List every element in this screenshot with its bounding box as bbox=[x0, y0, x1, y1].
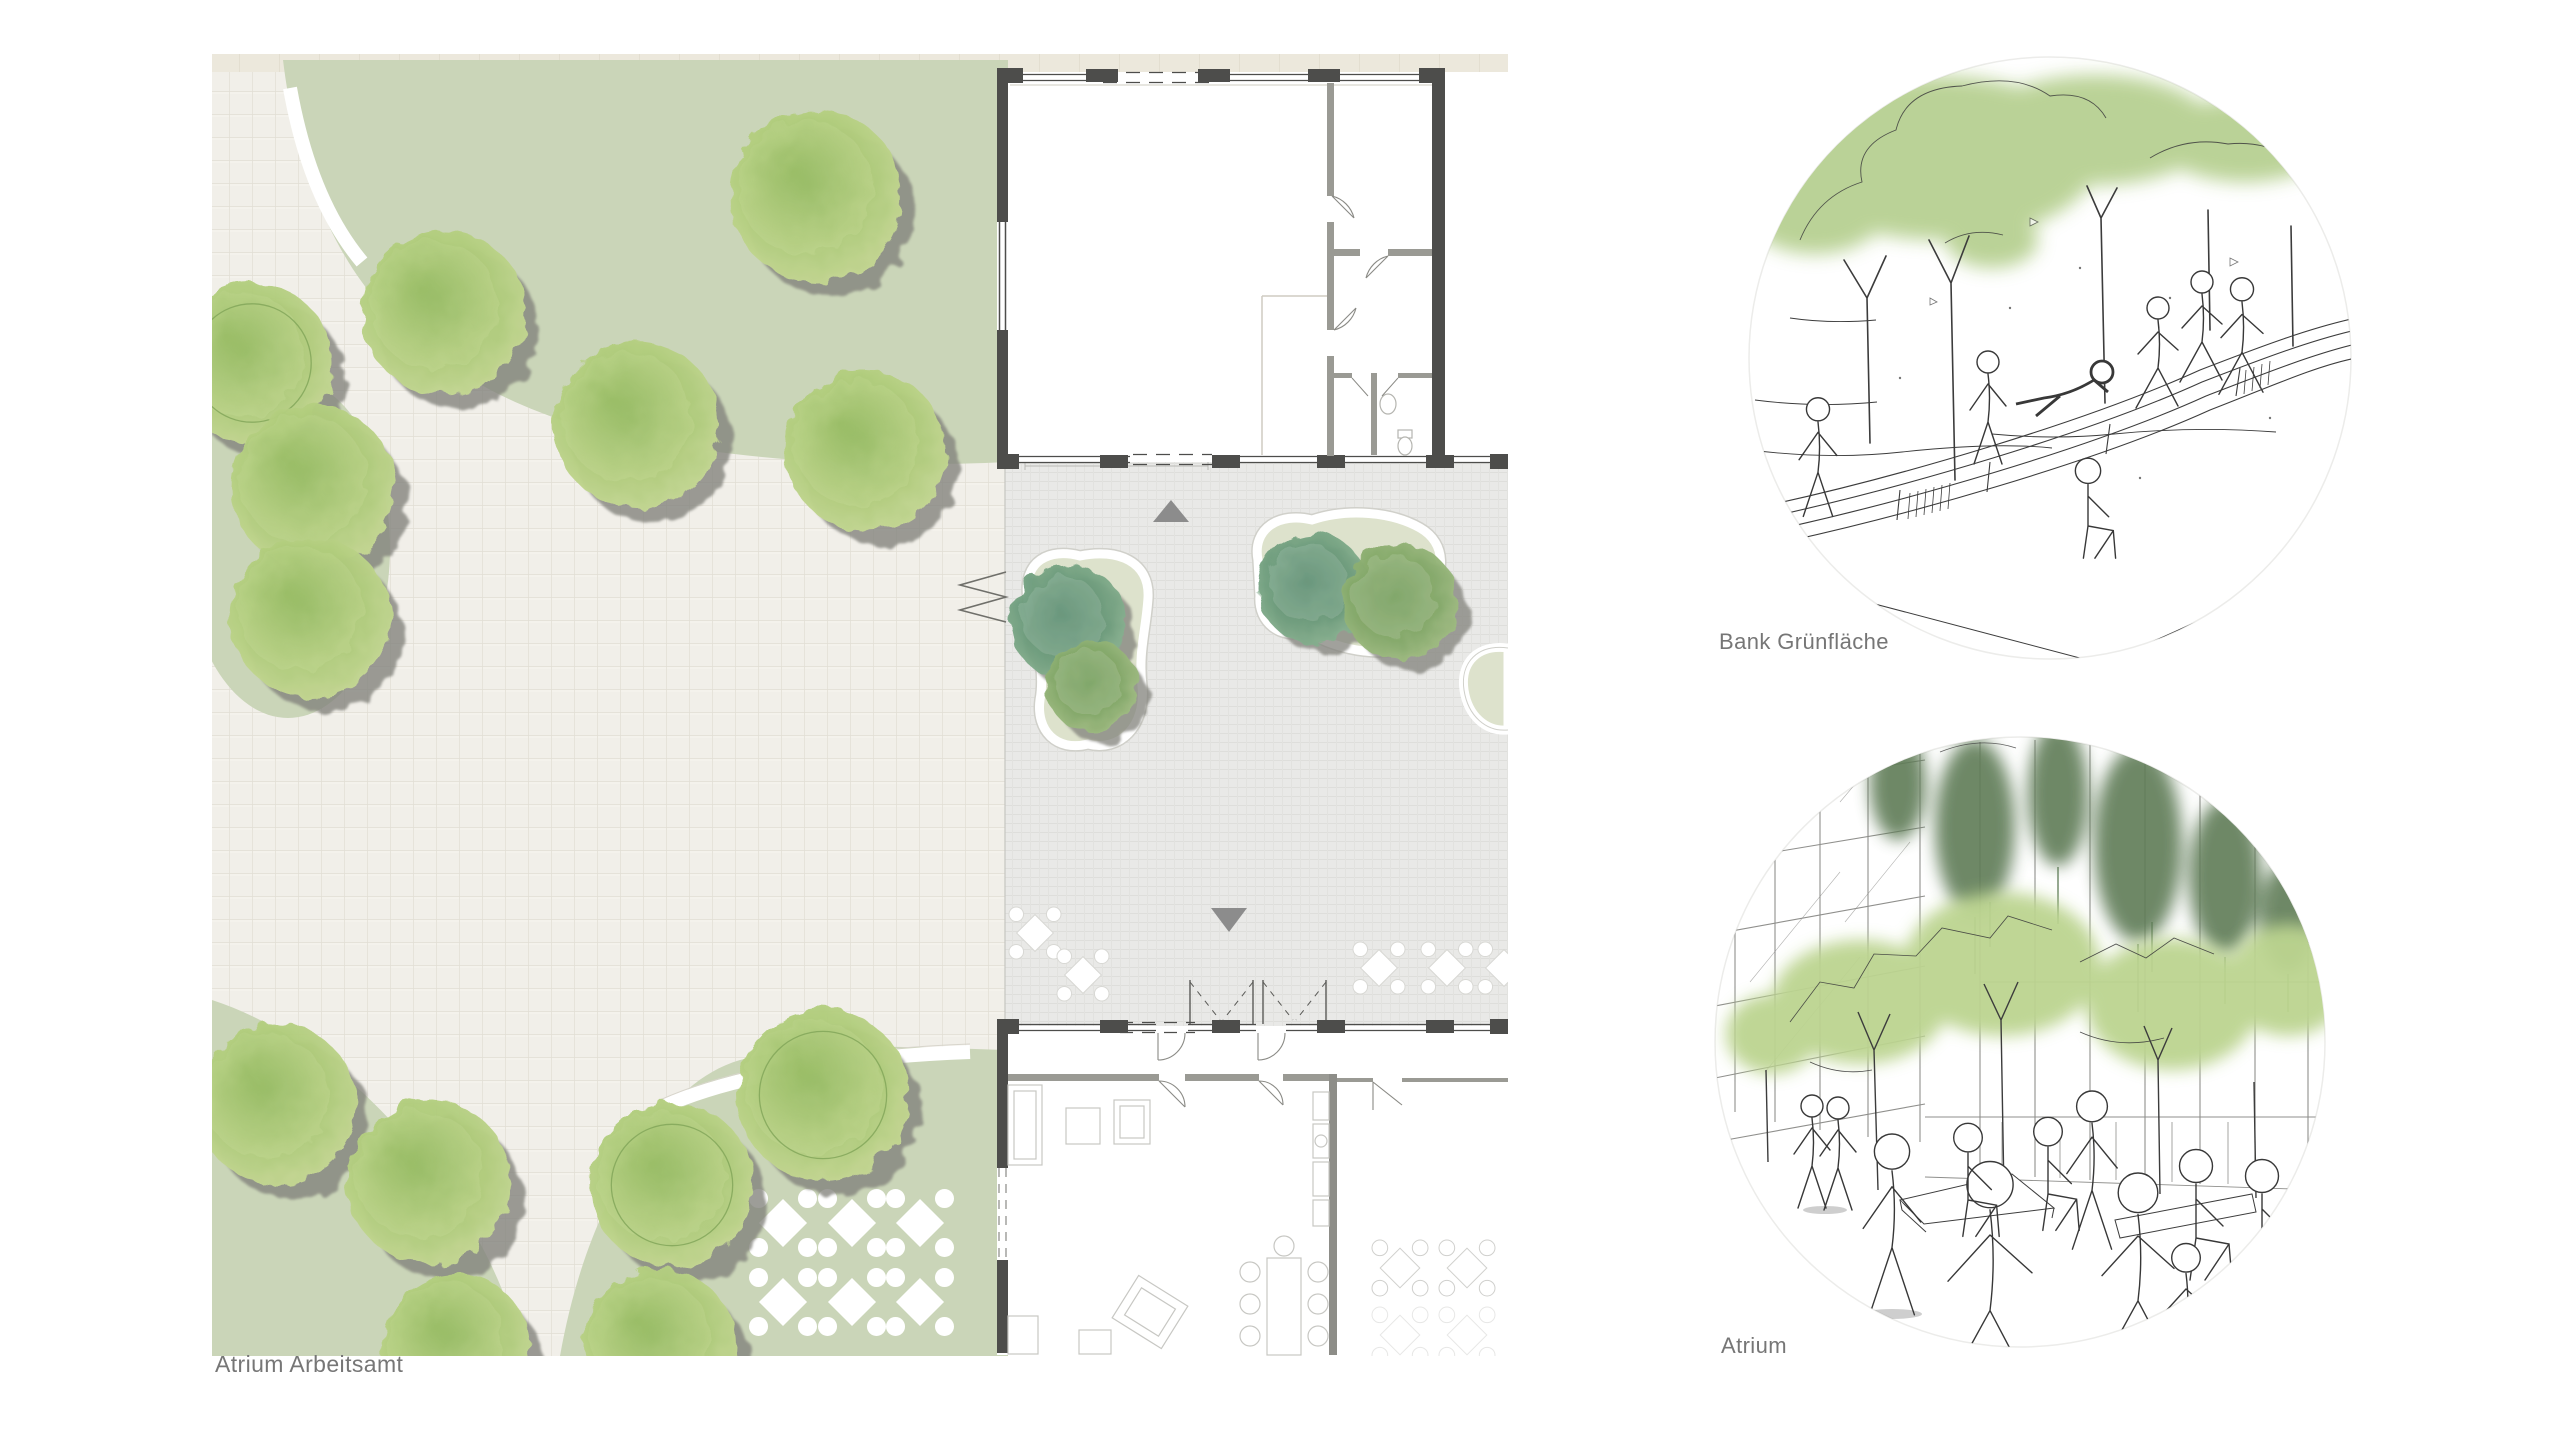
vignette-atrium bbox=[1712, 734, 2328, 1350]
table-with-chairs bbox=[818, 1189, 886, 1257]
table-with-chairs bbox=[1439, 1240, 1495, 1296]
building-bottom bbox=[997, 1019, 1508, 1356]
table-with-chairs bbox=[1421, 942, 1473, 994]
vignette-atrium-label: Atrium bbox=[1721, 1333, 1787, 1359]
table-with-chairs bbox=[1372, 1240, 1428, 1296]
table-with-chairs bbox=[1353, 942, 1405, 994]
table-with-chairs bbox=[1009, 907, 1061, 959]
plan-label: Atrium Arbeitsamt bbox=[215, 1351, 403, 1378]
vignette-bank-gruenflaeche bbox=[1746, 54, 2354, 662]
presentation-board: Atrium Arbeitsamt Bank Grünfläche Atrium bbox=[0, 0, 2560, 1440]
table-with-chairs bbox=[1057, 949, 1109, 1001]
table-with-chairs bbox=[886, 1268, 954, 1336]
table-with-chairs bbox=[886, 1189, 954, 1257]
vignette-bank-label: Bank Grünfläche bbox=[1719, 629, 1889, 655]
atrium-courtyard bbox=[960, 462, 1508, 1026]
site-plan bbox=[212, 54, 1508, 1356]
table-with-chairs bbox=[749, 1268, 817, 1336]
table-with-chairs bbox=[818, 1268, 886, 1336]
building-top bbox=[997, 68, 1508, 469]
